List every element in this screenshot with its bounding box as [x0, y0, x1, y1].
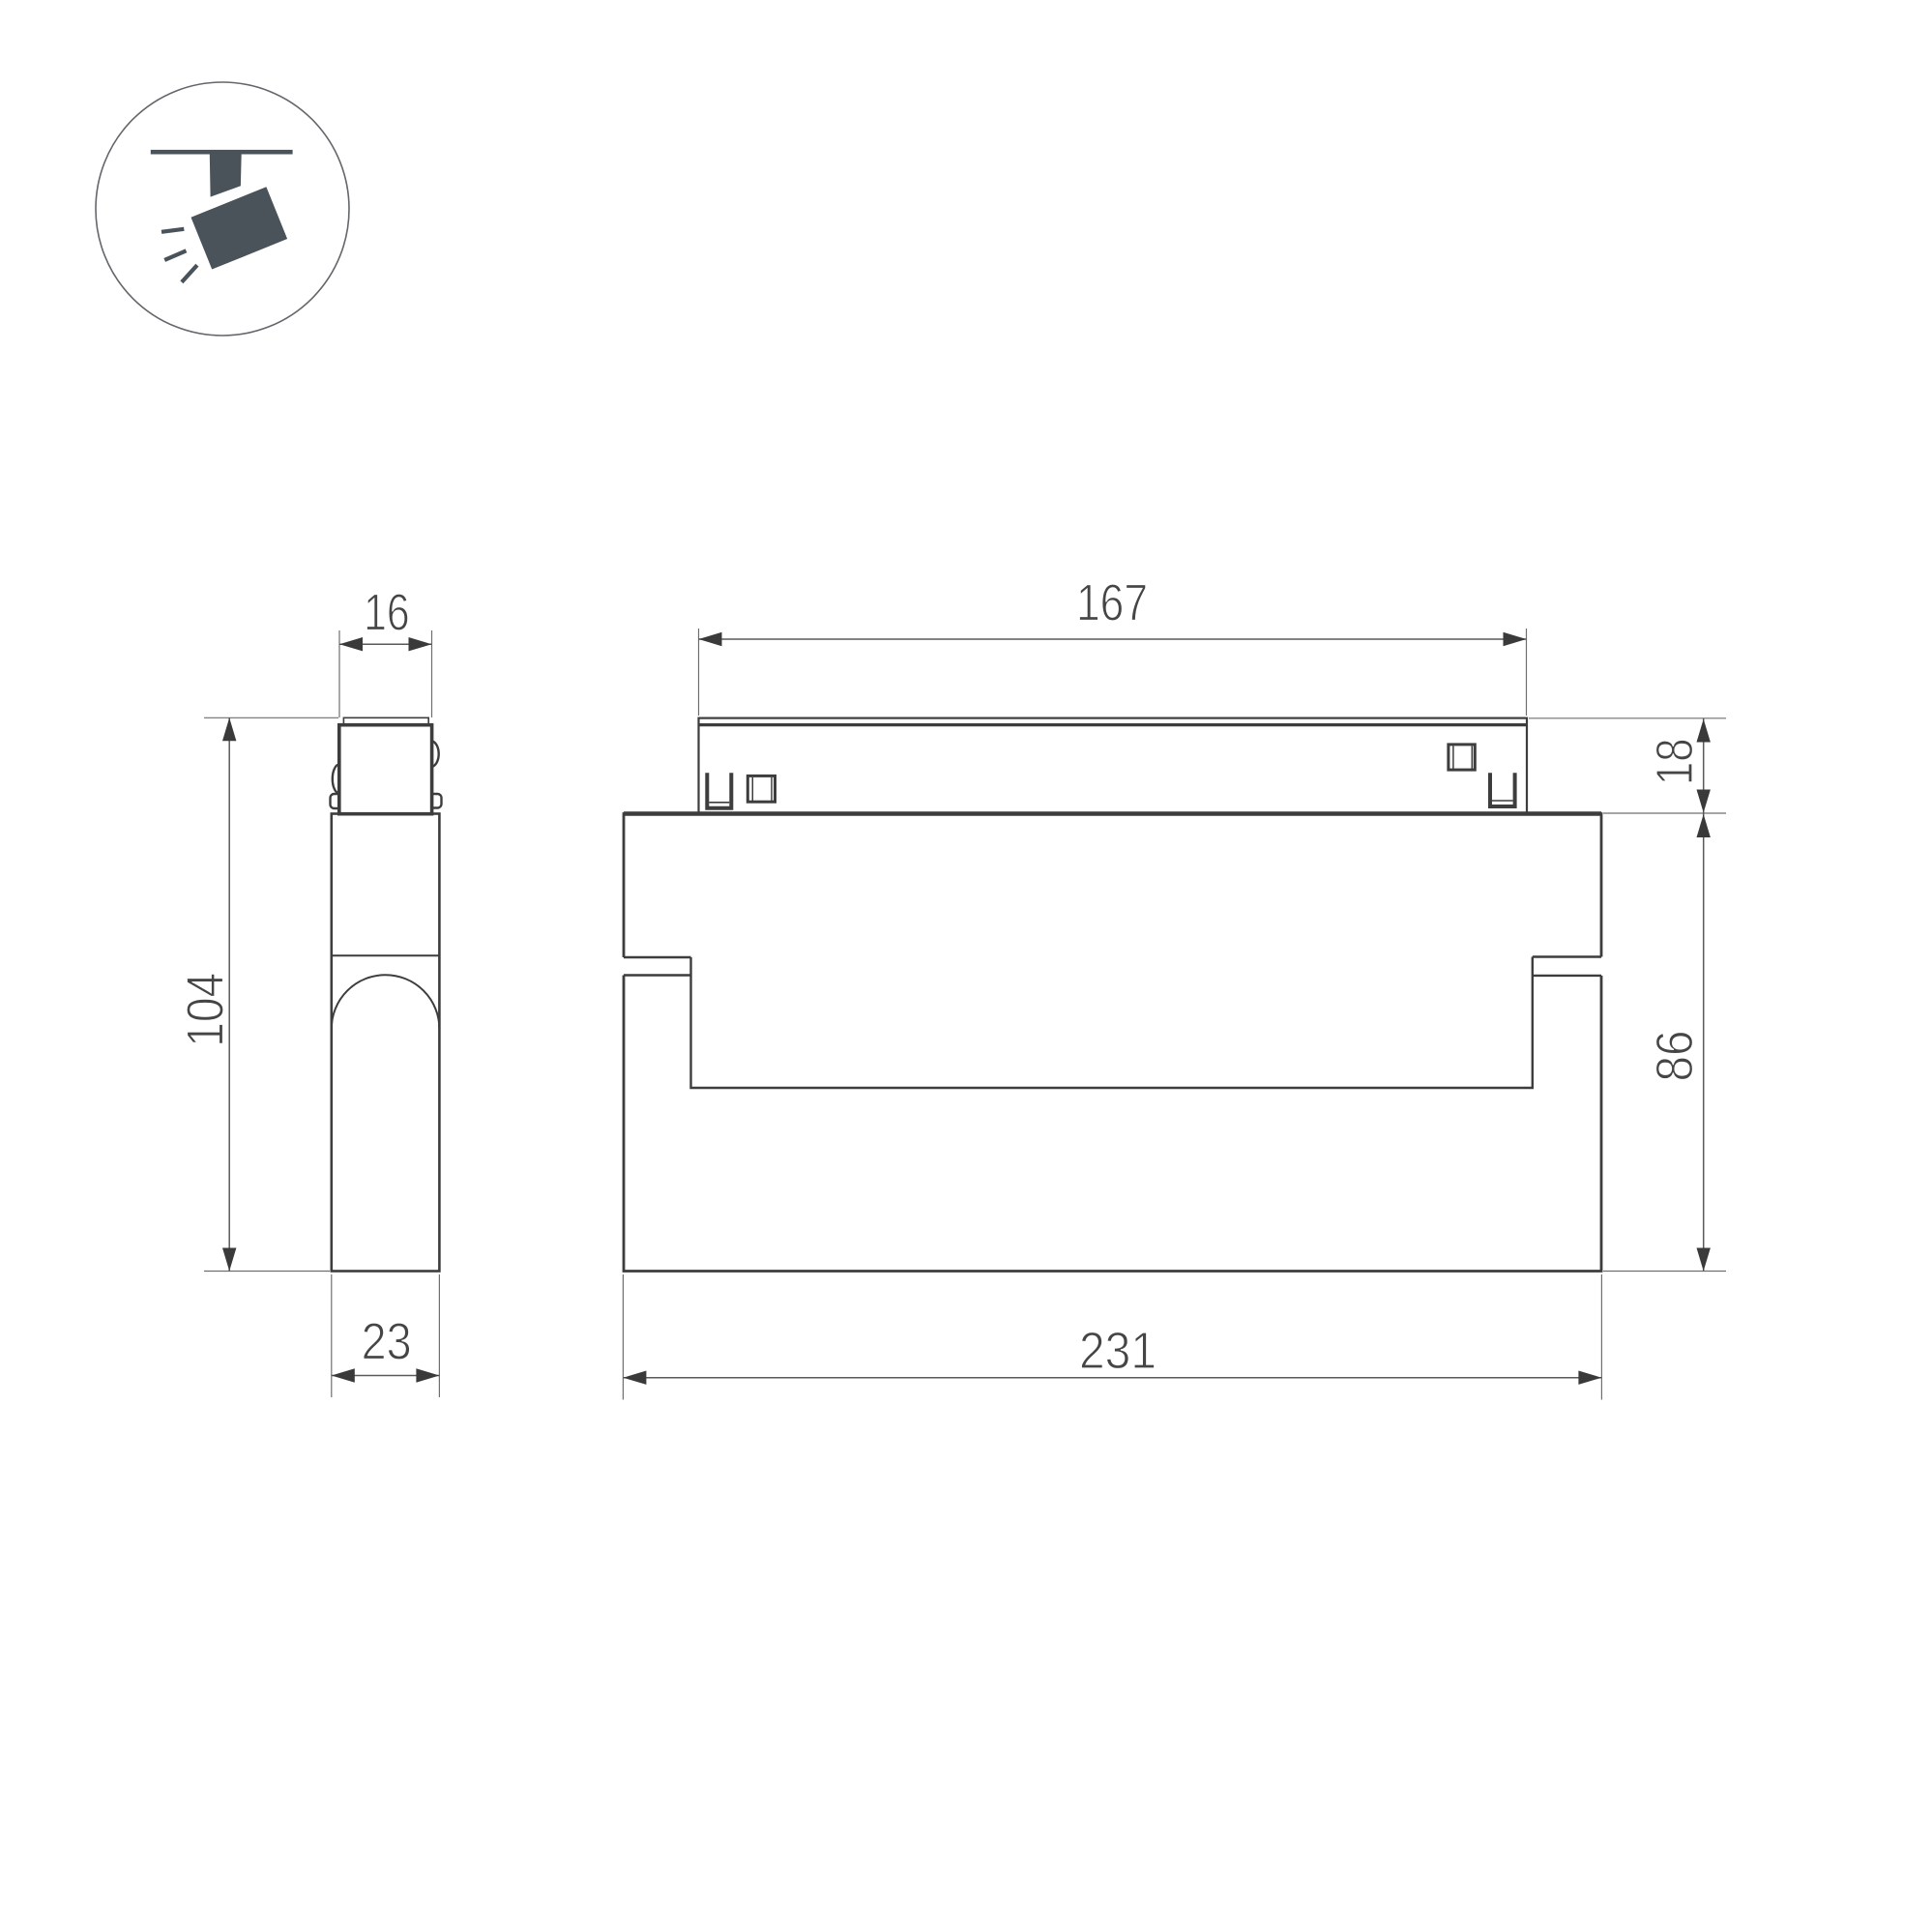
svg-text:86: 86: [1646, 1031, 1704, 1082]
svg-text:231: 231: [1079, 1322, 1156, 1380]
svg-text:16: 16: [364, 584, 410, 642]
svg-text:104: 104: [177, 973, 235, 1047]
svg-text:18: 18: [1646, 739, 1704, 786]
svg-text:167: 167: [1076, 573, 1148, 631]
svg-text:23: 23: [362, 1313, 412, 1371]
